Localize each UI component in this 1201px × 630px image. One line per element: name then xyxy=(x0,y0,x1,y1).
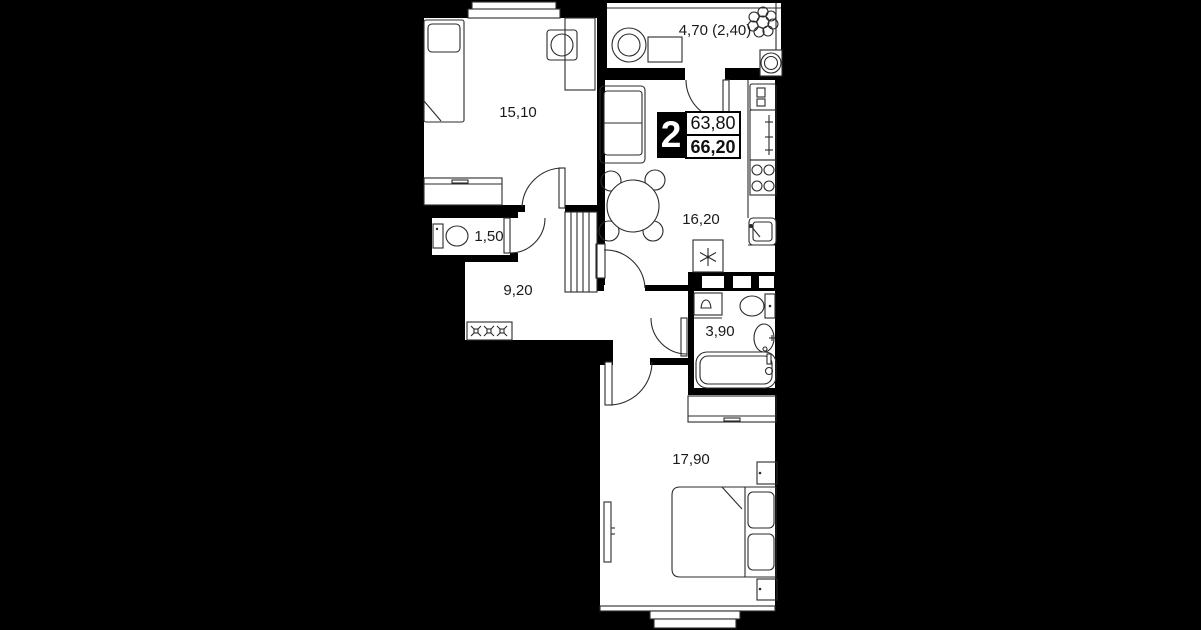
wc-door-gap xyxy=(510,218,518,253)
vent-shaft xyxy=(759,276,774,288)
bedroom-bottom-door-gap xyxy=(613,355,650,365)
kitchen-sink-icon xyxy=(749,218,776,245)
badge-area-top: 63,80 xyxy=(690,113,735,133)
door-leaf xyxy=(504,218,510,253)
floor-plan-canvas: 15,10 4,70 (2,40) 16,20 1,50 9,20 3,90 1… xyxy=(0,0,1201,630)
area-badge: 2 63,80 66,20 xyxy=(657,112,740,158)
living-floor-ext xyxy=(605,272,688,285)
window-top-sill xyxy=(468,9,560,18)
window-bottom xyxy=(650,611,740,619)
hallway-floor-upper xyxy=(518,212,597,262)
balcony-door-gap xyxy=(685,68,725,80)
window-bottom-sill xyxy=(654,619,736,628)
room-label-living-kitchen: 16,20 xyxy=(682,211,720,228)
dining-table-icon xyxy=(607,180,659,232)
sofa-icon xyxy=(600,86,645,163)
vent-shaft xyxy=(702,276,724,288)
badge-area-bottom: 66,20 xyxy=(690,137,735,157)
living-corridor-passage xyxy=(604,285,645,291)
room-label-wc: 1,50 xyxy=(474,228,503,245)
room-label-bedroom-top: 15,10 xyxy=(499,104,537,121)
door-leaf xyxy=(559,168,565,208)
room-label-bedroom-bottom: 17,90 xyxy=(672,451,710,468)
floor-plan: 15,10 4,70 (2,40) 16,20 1,50 9,20 3,90 1… xyxy=(0,0,1201,630)
pot-icon xyxy=(760,50,782,76)
room-label-balcony: 4,70 (2,40) xyxy=(679,22,752,39)
door-leaf xyxy=(681,318,687,356)
room-label-hallway: 9,20 xyxy=(503,282,532,299)
door-leaf xyxy=(605,362,612,405)
bottom-thin-wall xyxy=(600,606,775,611)
vent-shaft xyxy=(733,276,751,288)
badge-rooms-count: 2 xyxy=(661,114,682,155)
room-label-bathroom: 3,90 xyxy=(705,323,734,340)
